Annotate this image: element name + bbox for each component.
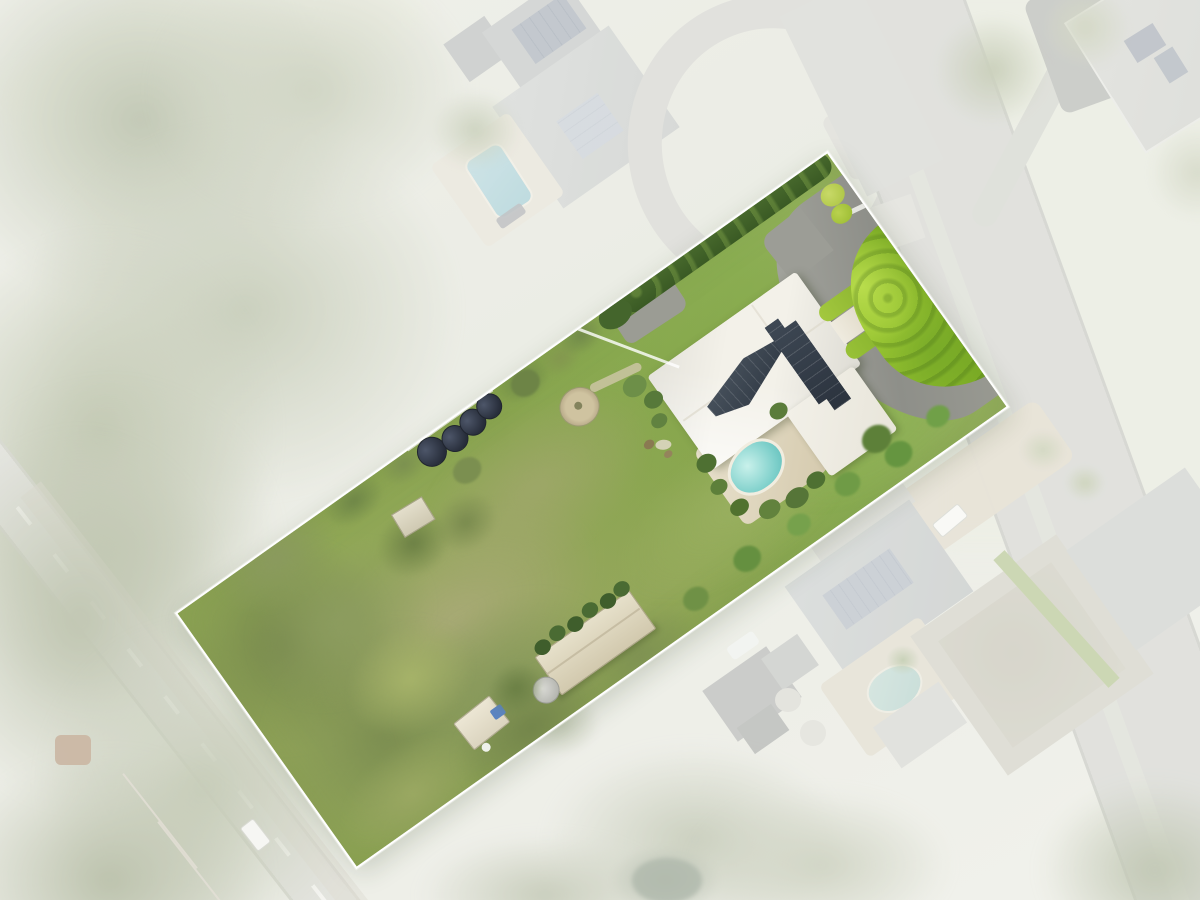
trees-bottom-right (1040, 780, 1200, 900)
rusty-structure (55, 735, 91, 765)
boundary-bush-east-1 (1020, 430, 1066, 470)
aerial-photo-scene (0, 0, 1200, 900)
mulch-bed-2 (663, 449, 674, 460)
pond-water (632, 858, 702, 900)
neighbor-bottom-tank-pad-2 (800, 720, 826, 746)
boundary-bush-east-2 (1065, 465, 1105, 501)
neighbor-bottom-tank-pad-1 (775, 688, 801, 712)
tree-top-right-1 (935, 15, 1050, 125)
stepping-stones (655, 439, 672, 450)
neighbor-top-palms (430, 90, 520, 170)
neighbor-br-palm (886, 645, 920, 675)
